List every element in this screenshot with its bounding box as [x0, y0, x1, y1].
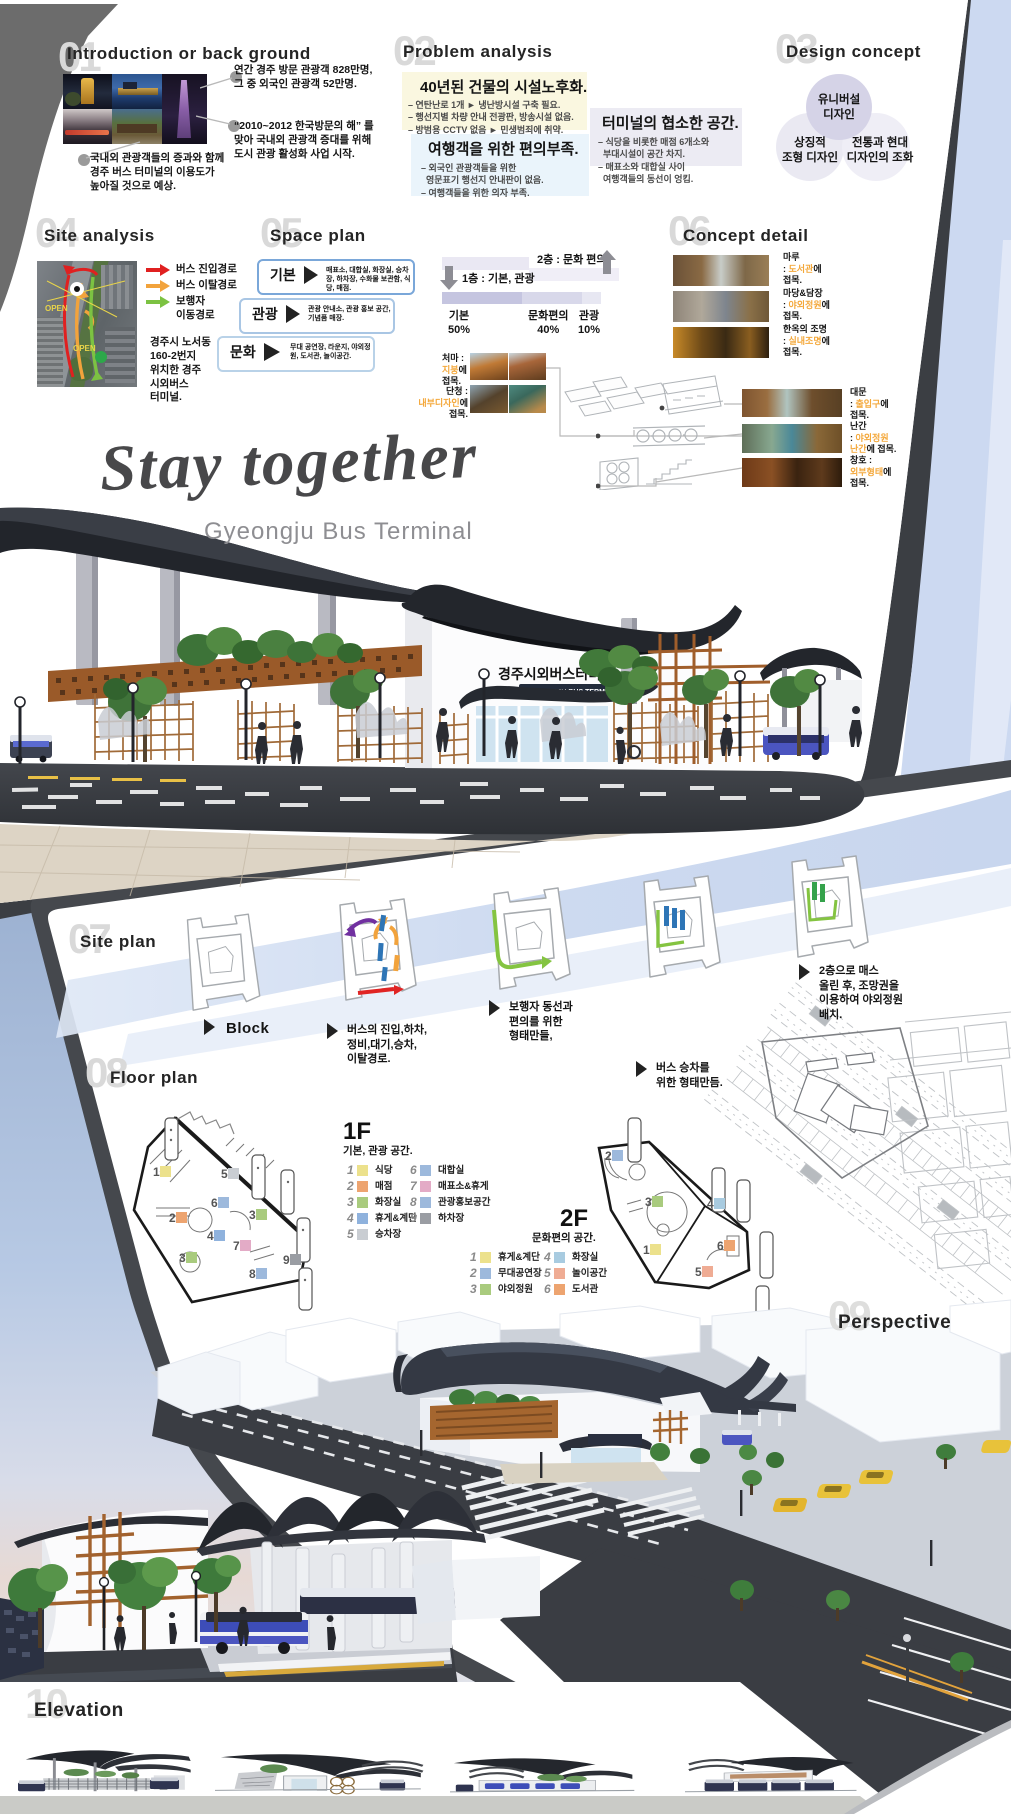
svg-text:4: 4 — [207, 1229, 214, 1243]
svg-text:3: 3 — [249, 1208, 256, 1222]
svg-text:1: 1 — [153, 1165, 160, 1179]
svg-text:3: 3 — [645, 1195, 652, 1209]
svg-text:2: 2 — [169, 1211, 176, 1225]
svg-text:8: 8 — [249, 1267, 256, 1281]
svg-text:6: 6 — [211, 1196, 218, 1210]
svg-text:9: 9 — [283, 1253, 290, 1267]
svg-text:5: 5 — [221, 1167, 228, 1181]
svg-text:3: 3 — [179, 1251, 186, 1265]
svg-text:2: 2 — [605, 1149, 612, 1163]
svg-text:5: 5 — [695, 1265, 702, 1279]
svg-text:6: 6 — [717, 1239, 724, 1253]
svg-text:4: 4 — [707, 1197, 714, 1211]
svg-text:OPEN: OPEN — [45, 304, 68, 313]
svg-text:7: 7 — [233, 1239, 240, 1253]
svg-text:1: 1 — [643, 1243, 650, 1257]
svg-text:OPEN: OPEN — [73, 344, 96, 353]
